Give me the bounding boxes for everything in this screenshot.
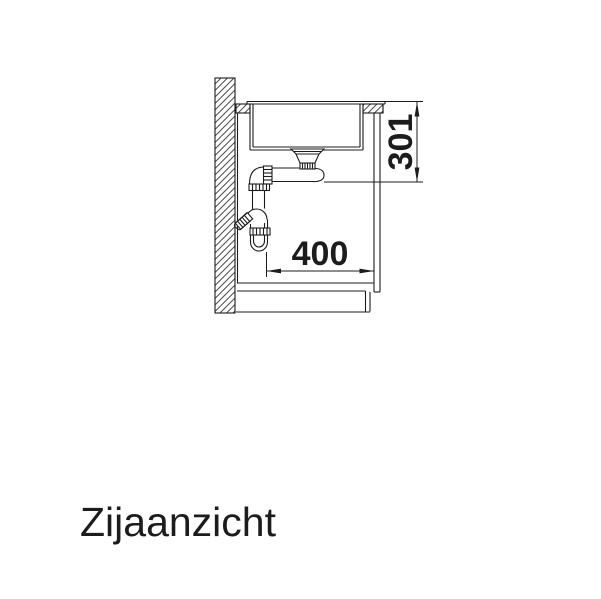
cabinet (236, 113, 380, 312)
siphon-trap (234, 191, 270, 252)
drain-pipe (249, 166, 324, 191)
sink-bowl (250, 104, 363, 150)
elbow-nut-vertical-pipe (249, 184, 270, 191)
drain-strainer (291, 149, 324, 169)
technical-drawing-page: 301 400 Zijaanzicht (0, 0, 601, 599)
side-view-technical-drawing: 301 400 Zijaanzicht (0, 0, 601, 599)
dimension-vertical-label: 301 (382, 114, 420, 171)
wall-hatched-section (215, 78, 235, 313)
elbow-nut-horizontal-pipe (264, 166, 273, 184)
trap-lower-nut (250, 228, 270, 235)
dimension-horizontal-label: 400 (292, 235, 349, 273)
drawing-caption: Zijaanzicht (80, 499, 277, 545)
